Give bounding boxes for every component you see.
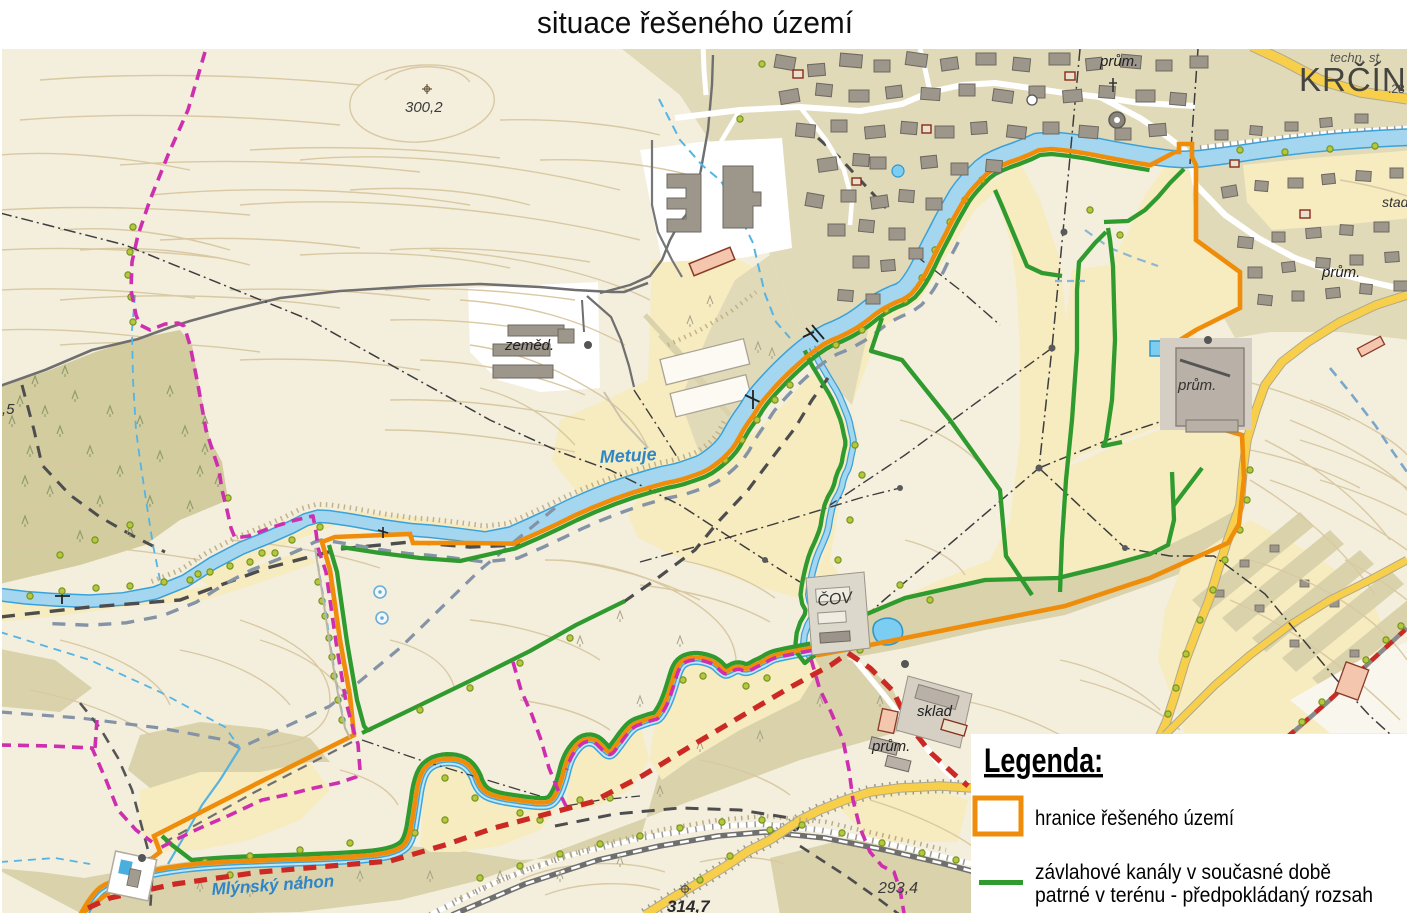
- svg-text:prům.: prům.: [1177, 377, 1216, 394]
- svg-text:zeměd.: zeměd.: [504, 337, 554, 354]
- svg-text:Metuje: Metuje: [599, 444, 657, 467]
- svg-text:závlahové kanály v současné do: závlahové kanály v současné době: [1035, 861, 1331, 884]
- svg-text:stad: stad: [1382, 194, 1407, 210]
- svg-text:hranice řešeného území: hranice řešeného území: [1035, 807, 1234, 830]
- svg-text:situace řešeného území: situace řešeného území: [537, 5, 853, 40]
- svg-text:300,2: 300,2: [405, 99, 443, 116]
- svg-text:314,7: 314,7: [667, 897, 711, 915]
- svg-text:Legenda:: Legenda:: [984, 742, 1103, 780]
- svg-text:,5: ,5: [2, 401, 15, 418]
- svg-text:prům.: prům.: [1321, 264, 1360, 281]
- svg-text:techn. st.: techn. st.: [1330, 50, 1383, 65]
- svg-text:sklad: sklad: [917, 703, 953, 720]
- svg-text:prům.: prům.: [1099, 53, 1138, 70]
- svg-text:293,4: 293,4: [877, 880, 918, 897]
- svg-text:prům.: prům.: [871, 738, 910, 755]
- svg-text:.28: .28: [1388, 82, 1405, 96]
- svg-text:patrné v terénu - předpokládan: patrné v terénu - předpokládaný rozsah: [1035, 884, 1373, 907]
